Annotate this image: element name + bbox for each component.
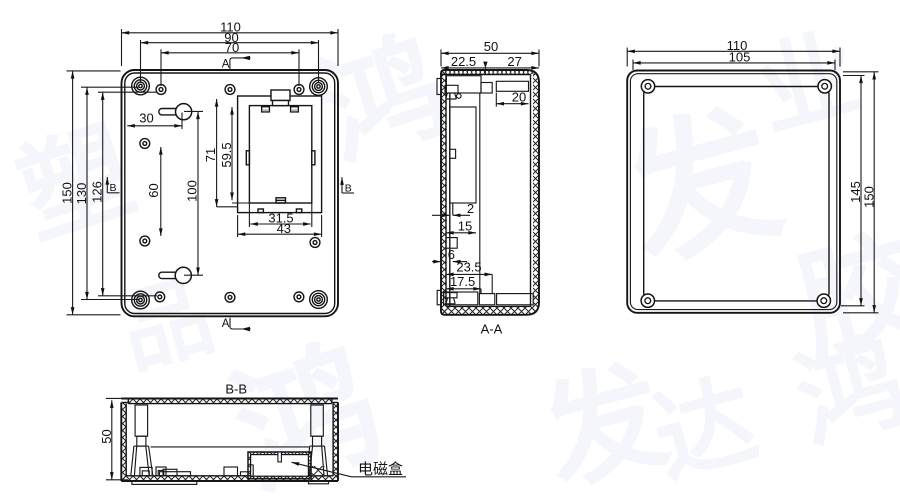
svg-text:100: 100 — [185, 180, 200, 202]
svg-text:20: 20 — [512, 89, 526, 104]
svg-text:150: 150 — [60, 182, 75, 204]
svg-text:A: A — [222, 58, 230, 70]
svg-text:业: 业 — [746, 17, 872, 151]
svg-text:105: 105 — [729, 50, 751, 65]
svg-text:60: 60 — [146, 183, 161, 197]
svg-text:22.5: 22.5 — [451, 54, 476, 69]
svg-text:A-A: A-A — [481, 322, 503, 337]
svg-text:130: 130 — [74, 183, 89, 205]
svg-text:150: 150 — [861, 186, 876, 208]
svg-text:15: 15 — [458, 218, 472, 233]
svg-text:50: 50 — [484, 39, 498, 54]
svg-text:50: 50 — [99, 429, 114, 443]
svg-text:70: 70 — [225, 40, 239, 55]
svg-text:30: 30 — [139, 111, 153, 126]
svg-text:B: B — [110, 182, 117, 194]
svg-text:71: 71 — [203, 148, 218, 162]
svg-text:17.5: 17.5 — [450, 274, 475, 289]
svg-text:B: B — [345, 182, 352, 194]
svg-text:A: A — [222, 318, 230, 330]
svg-text:电磁盒: 电磁盒 — [358, 461, 403, 478]
svg-text:鸿: 鸿 — [306, 18, 462, 183]
svg-text:59.5: 59.5 — [219, 142, 234, 167]
svg-text:B-B: B-B — [225, 382, 247, 397]
svg-text:品: 品 — [111, 266, 224, 386]
svg-text:6: 6 — [448, 247, 455, 262]
svg-text:43: 43 — [277, 221, 291, 236]
svg-text:126: 126 — [90, 181, 105, 203]
svg-text:27: 27 — [507, 54, 521, 69]
svg-text:2: 2 — [467, 201, 474, 216]
svg-text:23.5: 23.5 — [456, 260, 481, 275]
